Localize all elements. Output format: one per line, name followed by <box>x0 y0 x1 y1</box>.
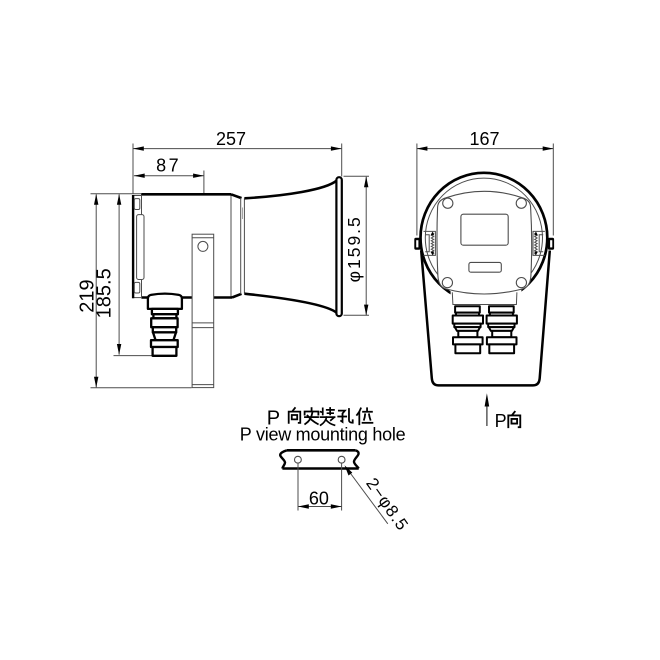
svg-text:60: 60 <box>309 489 329 509</box>
svg-text:P view mounting hole: P view mounting hole <box>240 424 406 444</box>
svg-text:P: P <box>495 411 507 431</box>
svg-text:185.5: 185.5 <box>94 268 116 318</box>
svg-text:2−φ8.5: 2−φ8.5 <box>362 474 412 534</box>
svg-text:167: 167 <box>469 129 499 149</box>
svg-text:87: 87 <box>156 156 181 176</box>
svg-text:257: 257 <box>216 129 246 149</box>
svg-text:φ159.5: φ159.5 <box>344 215 364 282</box>
